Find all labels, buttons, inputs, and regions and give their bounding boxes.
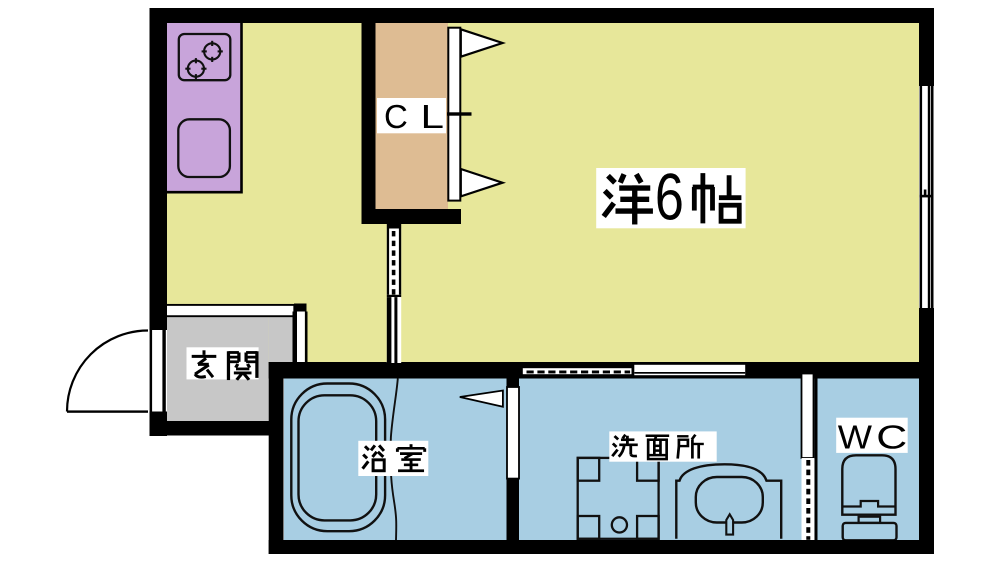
svg-text:W: W xyxy=(838,420,873,456)
svg-text:6: 6 xyxy=(655,159,684,233)
svg-text:L: L xyxy=(421,99,444,136)
svg-text:C: C xyxy=(876,419,907,456)
svg-text:C: C xyxy=(384,98,408,135)
